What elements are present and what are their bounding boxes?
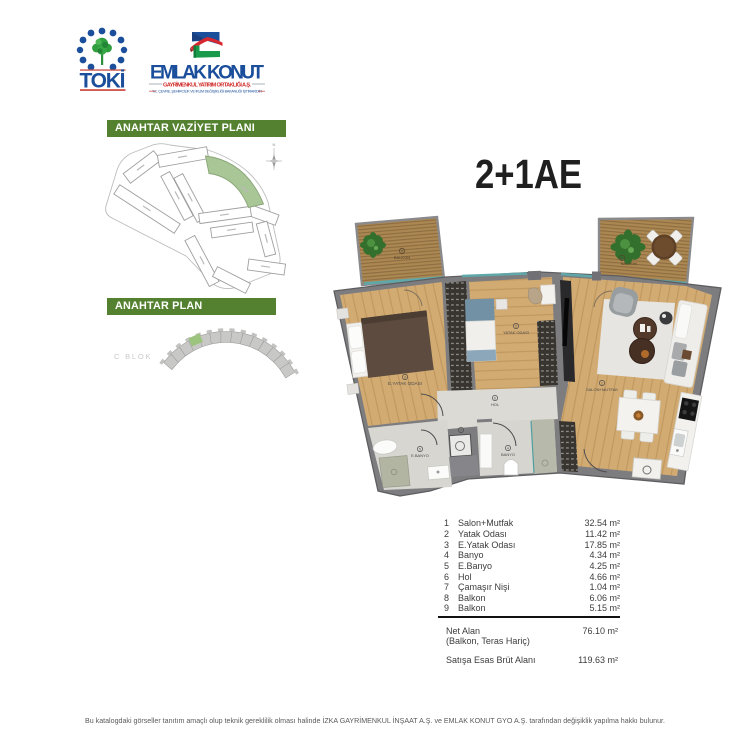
svg-text:BALKON: BALKON [621, 261, 637, 266]
svg-text:YATAK ODASI: YATAK ODASI [503, 330, 529, 335]
svg-text:GAYRİMENKUL YATIRIM ORTAKLIĞI: GAYRİMENKUL YATIRIM ORTAKLIĞI A.Ş. [163, 80, 251, 88]
svg-text:E.BANYO: E.BANYO [411, 453, 429, 458]
svg-text:8: 8 [621, 256, 623, 260]
svg-text:E.YATAK ODASI: E.YATAK ODASI [388, 381, 422, 386]
svg-text:2: 2 [515, 324, 517, 328]
svg-text:6: 6 [494, 396, 496, 400]
svg-text:EMLAK KONUT: EMLAK KONUT [150, 63, 264, 84]
svg-text:9: 9 [401, 249, 403, 253]
svg-text:2+1AE: 2+1AE [475, 151, 582, 197]
svg-text:T.C. ÇEVRE, ŞEHİRCİLİK VE İKLİ: T.C. ÇEVRE, ŞEHİRCİLİK VE İKLİM DEĞİŞİKL… [152, 89, 262, 94]
svg-text:1: 1 [601, 381, 603, 385]
svg-text:3: 3 [404, 375, 406, 379]
svg-text:BALKON: BALKON [394, 255, 410, 260]
svg-text:BANYO: BANYO [501, 452, 515, 457]
svg-text:4: 4 [507, 446, 509, 450]
svg-text:7: 7 [460, 428, 462, 432]
svg-text:SALON+MUTFAK: SALON+MUTFAK [586, 387, 618, 392]
svg-text:N: N [273, 142, 276, 147]
svg-text:TOKİ: TOKİ [80, 70, 126, 93]
svg-text:5: 5 [419, 447, 421, 451]
svg-text:HOL: HOL [491, 402, 500, 407]
